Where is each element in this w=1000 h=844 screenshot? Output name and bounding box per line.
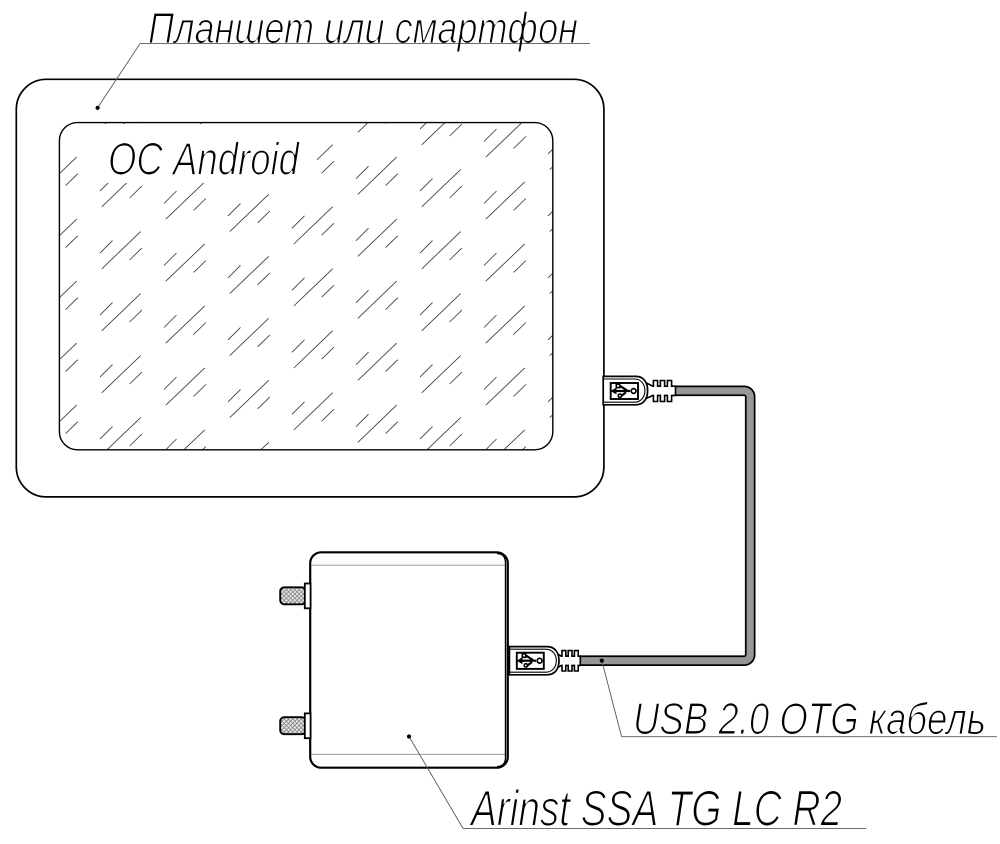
svg-text:ОС Android: ОС Android <box>108 134 301 185</box>
svg-text:USB 2.0 OTG кабель: USB 2.0 OTG кабель <box>633 694 986 744</box>
svg-text:Планшет или смартфон: Планшет или смартфон <box>148 4 578 53</box>
svg-text:Arinst SSA TG LC R2: Arinst SSA TG LC R2 <box>469 781 842 837</box>
